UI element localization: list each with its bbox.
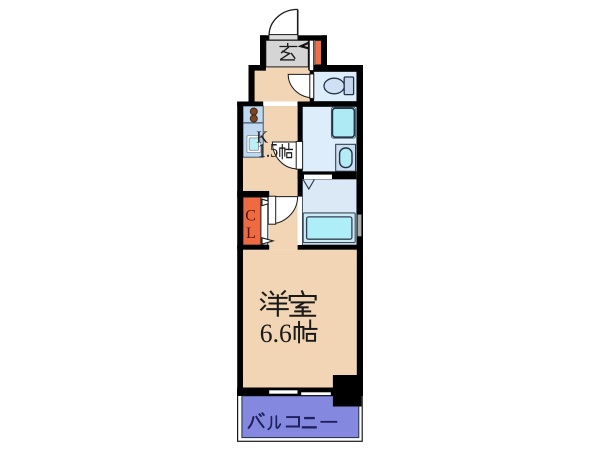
svg-text:6.6: 6.6 [260,319,292,348]
svg-text:1.5: 1.5 [258,140,278,162]
svg-text:L: L [246,225,256,242]
svg-text:C: C [245,208,256,225]
